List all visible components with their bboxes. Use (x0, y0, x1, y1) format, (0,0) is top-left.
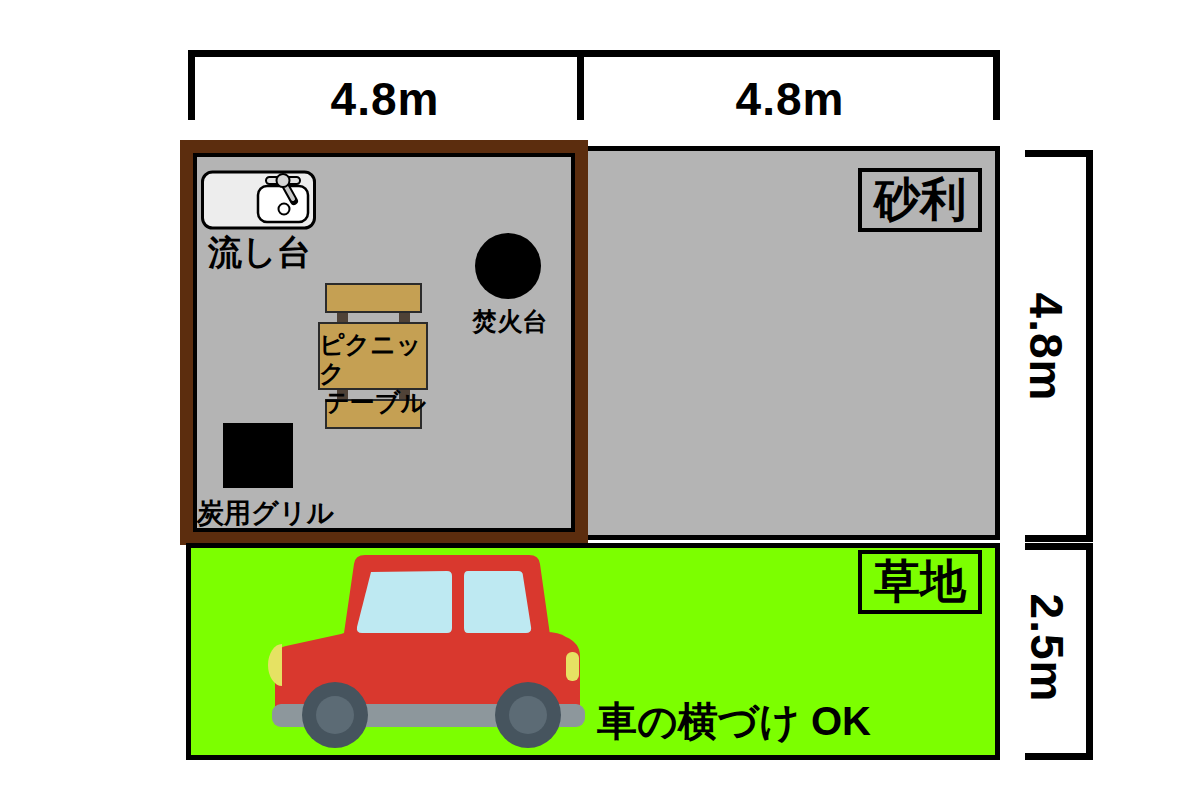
gravel-area-tag: 砂利 (858, 168, 982, 232)
top-bracket-tick-middle (577, 50, 584, 120)
right-lower-bracket-line (1086, 543, 1093, 760)
site-layout-diagram: 4.8m 4.8m 砂利 流し台 ピクニック テーブル 焚火台 炭用グリル 草地 (0, 0, 1200, 800)
dimension-top-right: 4.8m (665, 72, 915, 126)
top-bracket-line (188, 50, 1000, 57)
dimension-right-upper: 4.8m (1021, 267, 1071, 427)
top-bracket-tick-right (993, 50, 1000, 120)
right-lower-bracket-tick-bottom (1025, 753, 1093, 760)
charcoal-grill-label: 炭用グリル (197, 495, 334, 531)
right-upper-bracket-tick-top (1025, 150, 1093, 157)
charcoal-grill-marker (223, 423, 293, 488)
picnic-table-label-line1: ピクニック (318, 330, 428, 388)
top-bracket-tick-left (188, 50, 195, 120)
grass-area-tag: 草地 (858, 550, 982, 614)
car-icon (265, 548, 590, 753)
fire-pit-label: 焚火台 (468, 305, 552, 338)
fire-pit-marker (475, 233, 541, 299)
dimension-top-left: 4.8m (260, 72, 510, 126)
sink-icon (200, 168, 318, 232)
picnic-table-bench-top (325, 283, 422, 313)
right-upper-bracket-line (1086, 150, 1093, 542)
sink-label: 流し台 (208, 230, 311, 276)
picnic-table-label-line2: テーブル (318, 388, 428, 417)
right-upper-bracket-tick-bottom (1025, 535, 1093, 542)
right-lower-bracket-tick-top (1025, 543, 1093, 550)
car-parking-note: 車の横づけ OK (597, 694, 871, 749)
picnic-table-label: ピクニック テーブル (318, 330, 428, 417)
dimension-right-lower: 2.5m (1022, 568, 1072, 728)
